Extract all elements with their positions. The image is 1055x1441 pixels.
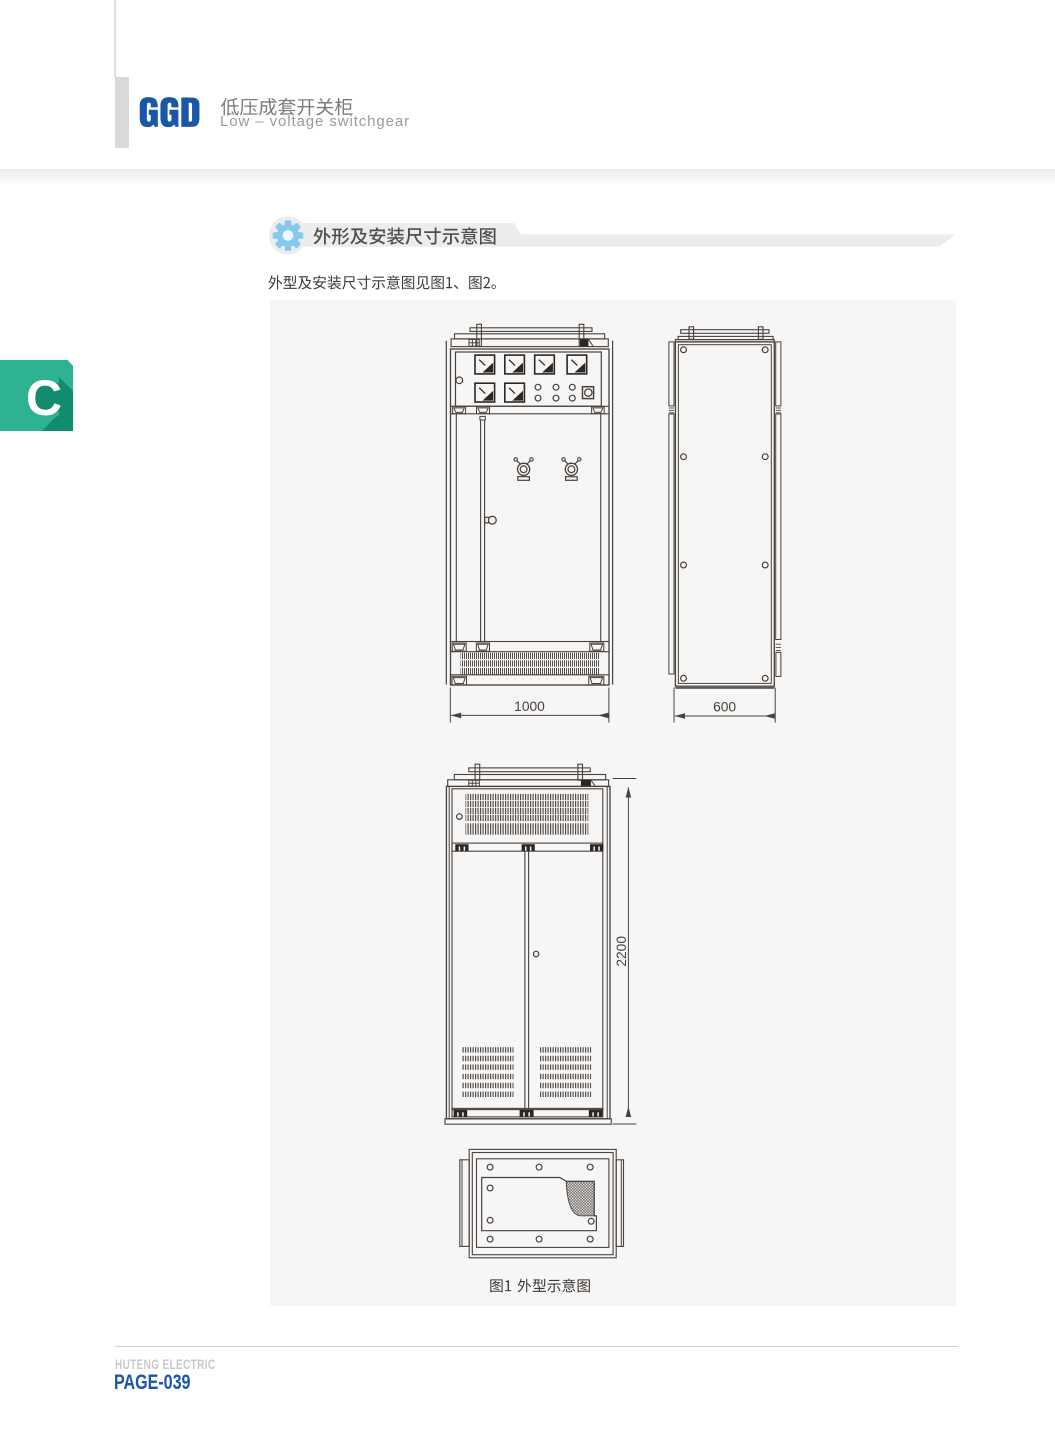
svg-text:1000: 1000 xyxy=(514,699,545,714)
svg-text:600: 600 xyxy=(713,699,736,714)
svg-text:2200: 2200 xyxy=(614,936,629,967)
svg-text:C: C xyxy=(26,370,62,426)
